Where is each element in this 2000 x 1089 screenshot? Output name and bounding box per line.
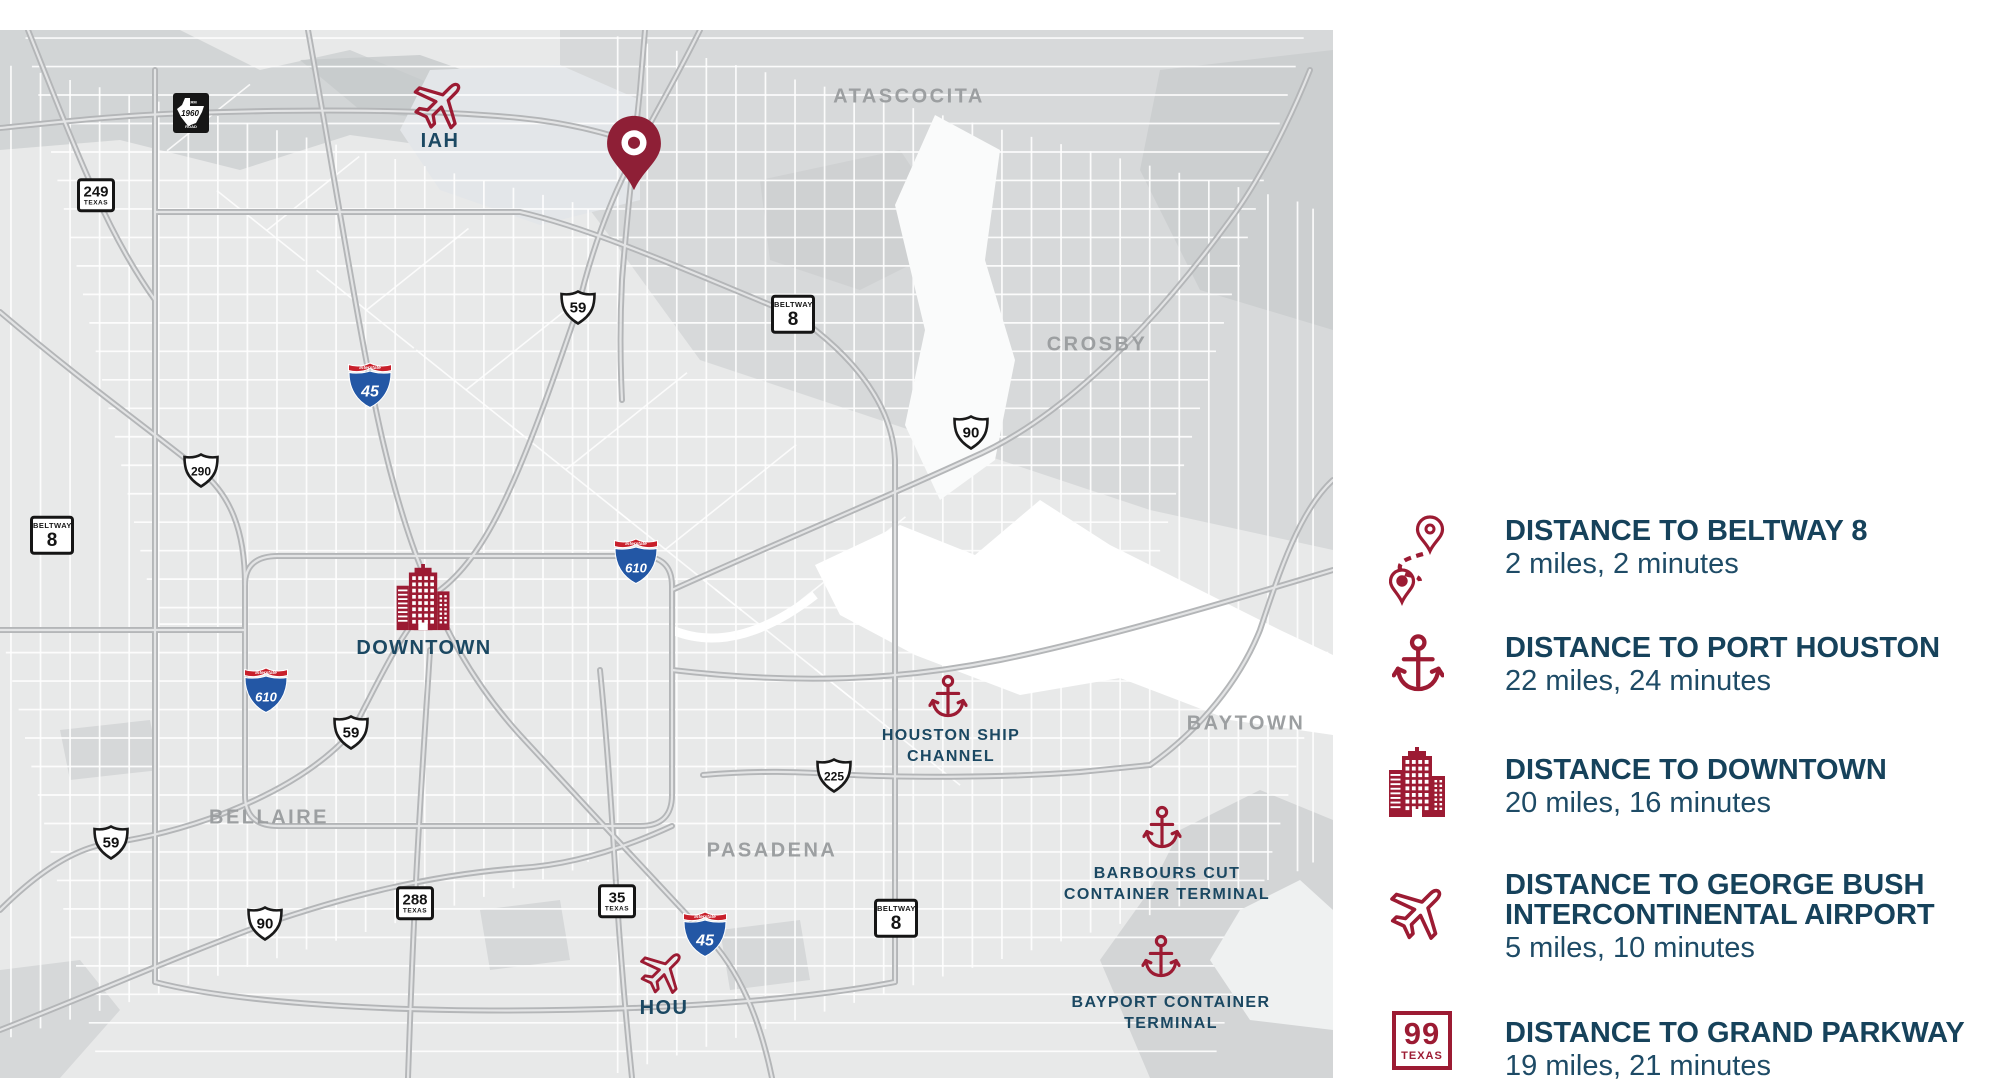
svg-text:59: 59 — [103, 835, 120, 852]
highway-shield-59: 59 — [91, 824, 131, 862]
building-icon — [1385, 747, 1451, 819]
anchor-icon — [1392, 633, 1444, 695]
route-icon — [1389, 514, 1447, 606]
legend-title: DISTANCE TO GRAND PARKWAY — [1505, 1018, 2000, 1048]
iah-airport-icon — [409, 72, 471, 134]
legend-title: DISTANCE TO PORT HOUSTON — [1505, 633, 2000, 663]
city-label: ATASCOCITA — [833, 86, 985, 109]
downtown-building-icon — [393, 564, 455, 632]
svg-text:Interstate: Interstate — [694, 914, 716, 920]
legend-distance-text: 22 miles, 24 minutes — [1505, 666, 2000, 696]
svg-text:FARM: FARM — [185, 100, 197, 105]
plane-icon — [1385, 877, 1453, 945]
highway-shield-90: 90 — [951, 414, 991, 452]
city-label: BAYTOWN — [1187, 713, 1306, 736]
property-location-pin-icon — [604, 114, 663, 192]
svg-text:290: 290 — [191, 465, 211, 479]
svg-text:59: 59 — [570, 300, 587, 317]
highway-shield-288: 288TEXAS — [396, 886, 434, 920]
svg-text:45: 45 — [360, 384, 380, 401]
highway-shield-8: BELTWAY8 — [30, 516, 74, 555]
svg-text:90: 90 — [257, 916, 274, 933]
highway-shield-290: 290 — [181, 452, 221, 490]
houston-area-map: ATASCOCITACROSBYBAYTOWNBELLAIREPASADENAI… — [0, 30, 1333, 1078]
highway-shield-249: 249TEXAS — [77, 178, 115, 212]
highway-shield-8: BELTWAY8 — [874, 899, 918, 938]
svg-text:90: 90 — [963, 425, 980, 442]
svg-text:Interstate: Interstate — [255, 670, 277, 676]
legend-title: DISTANCE TO BELTWAY 8 — [1505, 516, 2000, 546]
highway-shield-59: 59 — [331, 714, 371, 752]
svg-text:225: 225 — [824, 770, 844, 784]
city-label: BELLAIRE — [209, 807, 329, 830]
highway-shield-45: Interstate 45 — [346, 360, 394, 410]
texas-99-shield-icon: 99TEXAS — [1392, 1011, 1452, 1070]
svg-text:59: 59 — [343, 725, 360, 742]
highway-shield-8: BELTWAY8 — [771, 295, 815, 334]
highway-shield-610: Interstate 610 — [242, 665, 290, 715]
svg-text:610: 610 — [255, 690, 277, 705]
highway-shield-610: Interstate 610 — [612, 536, 660, 586]
highway-shield-90: 90 — [245, 905, 285, 943]
bayport-label: BAYPORT CONTAINERTERMINAL — [1072, 992, 1271, 1034]
downtown-label: DOWNTOWN — [356, 635, 491, 661]
svg-text:Interstate: Interstate — [359, 365, 381, 371]
legend-title: DISTANCE TO GEORGE BUSH INTERCONTINENTAL… — [1505, 870, 2000, 930]
svg-text:Interstate: Interstate — [625, 541, 647, 547]
svg-text:610: 610 — [625, 561, 647, 576]
barbours-cut-label: BARBOURS CUTCONTAINER TERMINAL — [1064, 863, 1270, 905]
svg-text:45: 45 — [695, 933, 715, 950]
barbours-cut-anchor-icon — [1143, 805, 1182, 851]
basemap-roads — [0, 30, 1333, 1078]
houston-ship-channel-anchor-icon — [929, 674, 968, 720]
legend-distance-text: 2 miles, 2 minutes — [1505, 549, 2000, 579]
shield99-icon: 99TEXAS — [1392, 1011, 1452, 1070]
hou-airport-icon — [636, 944, 690, 998]
houston-distance-map-page: { "colors": { "brand_red": "#9c1b33", "p… — [0, 0, 2000, 1089]
legend-distance-text: 20 miles, 16 minutes — [1505, 788, 2000, 818]
legend-title: DISTANCE TO DOWNTOWN — [1505, 755, 2000, 785]
iah-label: IAH — [421, 128, 460, 154]
city-label: CROSBY — [1047, 334, 1148, 357]
city-label: PASADENA — [707, 840, 838, 863]
highway-shield-1960: FARM 1960 ROAD — [173, 93, 209, 133]
svg-text:1960: 1960 — [181, 109, 199, 118]
svg-text:ROAD: ROAD — [185, 124, 197, 129]
houston-ship-channel-label: HOUSTON SHIPCHANNEL — [882, 725, 1020, 767]
highway-shield-35: 35TEXAS — [598, 884, 636, 918]
legend-distance-text: 5 miles, 10 minutes — [1505, 933, 2000, 963]
hou-label: HOU — [640, 995, 689, 1021]
highway-shield-225: 225 — [814, 757, 854, 795]
highway-shield-59: 59 — [558, 289, 598, 327]
legend-distance-text: 19 miles, 21 minutes — [1505, 1051, 2000, 1081]
bayport-anchor-icon — [1142, 934, 1181, 980]
